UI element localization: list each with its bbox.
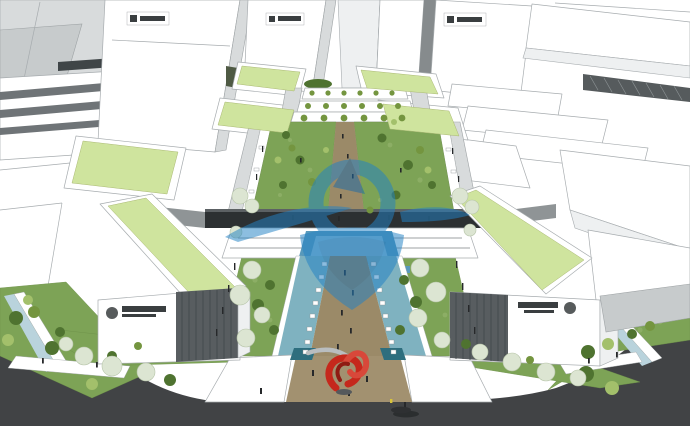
louver-section [176, 288, 238, 362]
tower-sign-left [127, 12, 169, 25]
tower-sign-center [266, 13, 304, 25]
rendering-canvas [0, 0, 690, 426]
building-sign-right [518, 302, 576, 314]
tower-sign-right [444, 13, 486, 26]
pedestrian-yellow [390, 399, 392, 403]
hatched-facade-band [583, 74, 690, 102]
